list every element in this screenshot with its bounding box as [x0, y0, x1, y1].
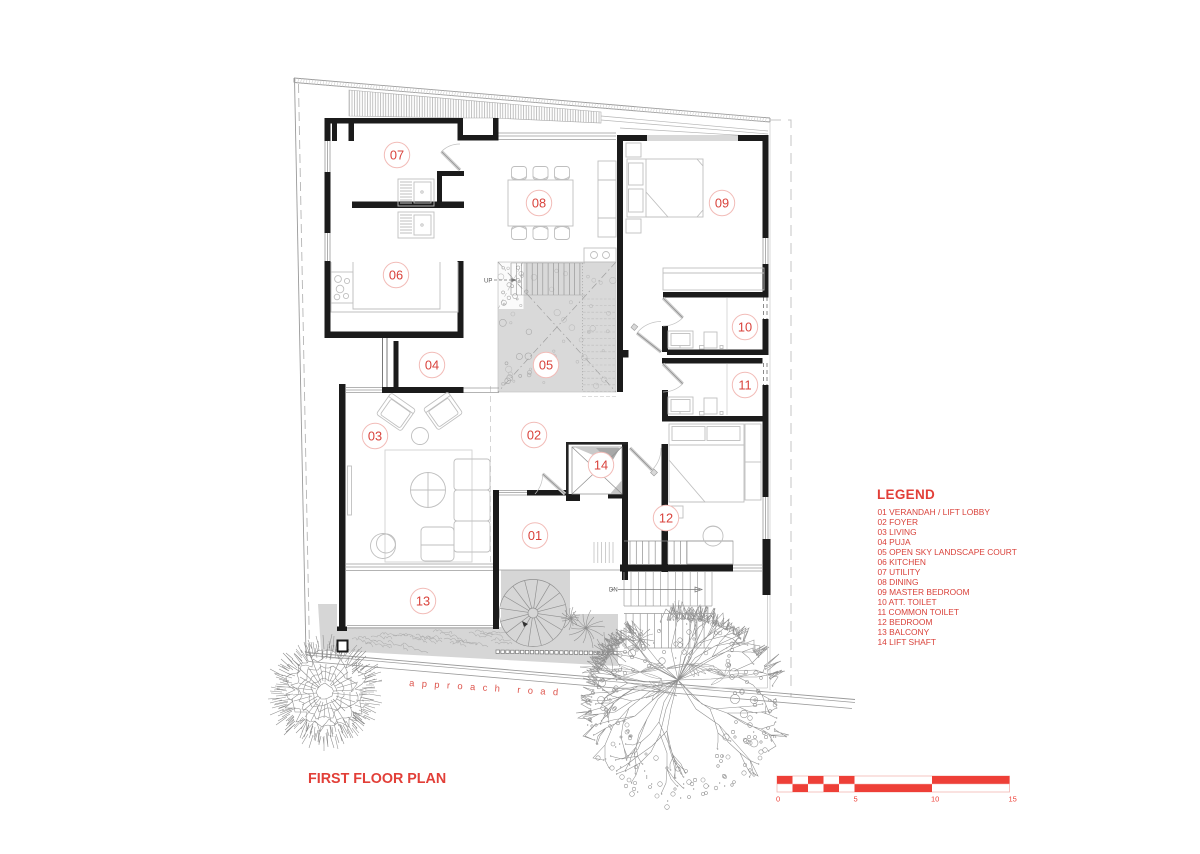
svg-text:07 UTILITY: 07 UTILITY — [878, 567, 921, 577]
svg-text:04 PUJA: 04 PUJA — [878, 537, 911, 547]
svg-text:5: 5 — [854, 795, 858, 804]
svg-text:UP: UP — [484, 279, 492, 285]
svg-text:0: 0 — [776, 795, 780, 804]
svg-text:02 FOYER: 02 FOYER — [878, 517, 919, 527]
svg-text:05: 05 — [539, 358, 553, 373]
svg-text:01 VERANDAH / LIFT LOBBY: 01 VERANDAH / LIFT LOBBY — [878, 507, 991, 517]
svg-text:06 KITCHEN: 06 KITCHEN — [878, 557, 926, 567]
svg-text:LEGEND: LEGEND — [877, 487, 935, 502]
svg-text:03: 03 — [368, 429, 382, 444]
svg-text:02: 02 — [527, 428, 541, 443]
svg-text:08: 08 — [532, 196, 546, 211]
svg-text:13 BALCONY: 13 BALCONY — [878, 627, 930, 637]
svg-text:03 LIVING: 03 LIVING — [878, 527, 917, 537]
svg-text:14 LIFT SHAFT: 14 LIFT SHAFT — [878, 637, 937, 647]
svg-text:07: 07 — [390, 148, 404, 163]
svg-text:DN: DN — [609, 588, 618, 594]
svg-text:06: 06 — [389, 268, 403, 283]
svg-text:09: 09 — [715, 196, 729, 211]
svg-text:11: 11 — [738, 378, 751, 393]
svg-text:13: 13 — [416, 594, 430, 609]
svg-text:12 BEDROOM: 12 BEDROOM — [878, 617, 933, 627]
svg-text:10: 10 — [931, 795, 939, 804]
svg-text:05 OPEN SKY LANDSCAPE COURT: 05 OPEN SKY LANDSCAPE COURT — [878, 547, 1017, 557]
svg-text:15: 15 — [1009, 795, 1017, 804]
svg-text:11 COMMON TOILET: 11 COMMON TOILET — [878, 607, 959, 617]
svg-text:08 DINING: 08 DINING — [878, 577, 919, 587]
svg-text:10: 10 — [738, 320, 752, 335]
svg-text:12: 12 — [659, 511, 673, 526]
svg-text:10 ATT. TOILET: 10 ATT. TOILET — [878, 597, 937, 607]
svg-text:14: 14 — [594, 458, 608, 473]
svg-text:01: 01 — [528, 528, 542, 543]
svg-text:04: 04 — [425, 358, 439, 373]
svg-text:FIRST FLOOR PLAN: FIRST FLOOR PLAN — [308, 771, 446, 787]
svg-text:09 MASTER BEDROOM: 09 MASTER BEDROOM — [878, 587, 970, 597]
